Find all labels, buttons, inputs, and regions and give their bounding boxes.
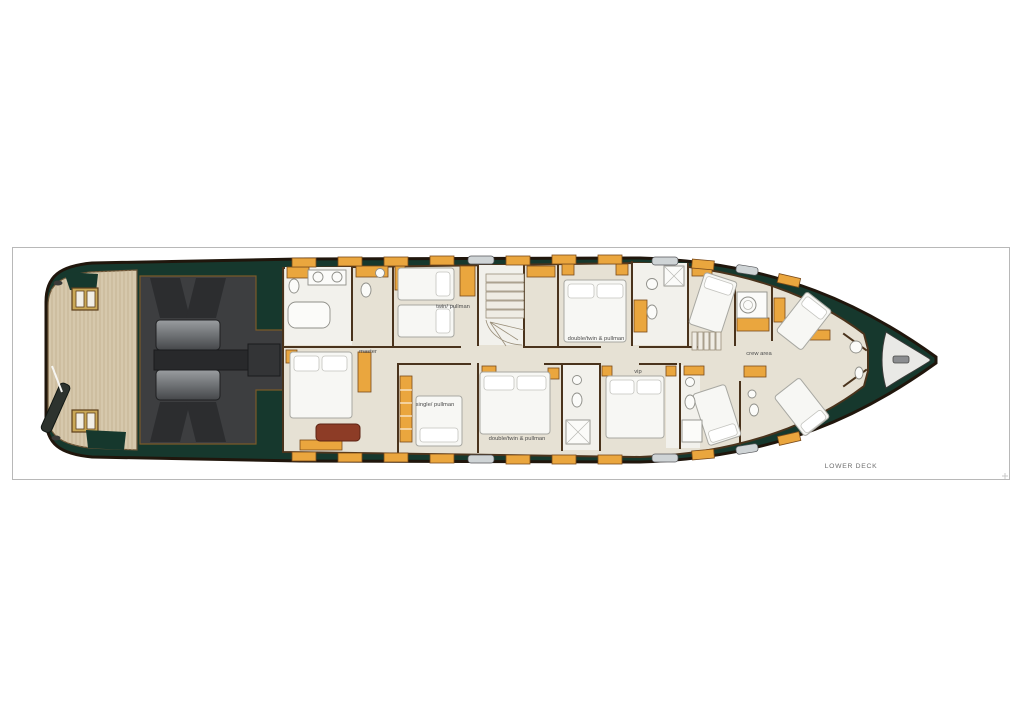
cleat bbox=[54, 281, 63, 286]
yacht-deck-plan-svg: twin/ pullman master double/twin & pullm… bbox=[0, 0, 1024, 724]
cabin-label-crew-area: crew area bbox=[746, 351, 772, 357]
gearbox-shaft bbox=[154, 350, 248, 370]
bathtub bbox=[288, 302, 330, 328]
vip-bed bbox=[606, 376, 664, 438]
deck-plan-page: twin/ pullman master double/twin & pullm… bbox=[0, 0, 1024, 724]
sink bbox=[313, 272, 323, 282]
double-starboard-bed bbox=[564, 280, 626, 342]
sink bbox=[376, 269, 385, 278]
cabin-label-single-pullman: single/ pullman bbox=[416, 402, 455, 408]
deck-name-label: LOWER DECK bbox=[825, 463, 878, 470]
toilet bbox=[750, 404, 759, 416]
engine-starboard bbox=[156, 370, 220, 400]
crew-staircase bbox=[692, 332, 721, 350]
sink bbox=[686, 378, 695, 387]
cabin-label-vip: vip bbox=[634, 369, 641, 375]
master-sofa bbox=[316, 424, 360, 441]
toilet bbox=[361, 283, 371, 297]
generator bbox=[248, 344, 280, 376]
toilet bbox=[647, 305, 657, 319]
cabin-label-double-starboard: double/twin & pullman bbox=[568, 336, 625, 342]
engine-port bbox=[156, 320, 220, 350]
twin-bed-1 bbox=[398, 268, 454, 300]
double-port-bed bbox=[480, 372, 550, 434]
toilet bbox=[289, 279, 299, 293]
crew-mess-table bbox=[850, 341, 862, 353]
toilet bbox=[685, 395, 695, 409]
master-bed bbox=[290, 352, 352, 418]
accommodation-interior bbox=[283, 262, 868, 457]
sink bbox=[647, 279, 658, 290]
windlass bbox=[893, 356, 909, 363]
washing-machine bbox=[737, 292, 767, 318]
cabin-label-double-port: double/twin & pullman bbox=[489, 436, 546, 442]
cabin-label-master: master bbox=[359, 349, 377, 355]
stern-swim-platform bbox=[40, 268, 137, 452]
cleat bbox=[52, 436, 61, 441]
sink bbox=[748, 390, 756, 398]
shower bbox=[682, 420, 702, 442]
sink bbox=[332, 272, 342, 282]
toilet bbox=[572, 393, 582, 407]
cabin-label-twin-pullman: twin/ pullman bbox=[436, 304, 470, 310]
sink bbox=[573, 376, 582, 385]
toilet bbox=[855, 367, 863, 379]
